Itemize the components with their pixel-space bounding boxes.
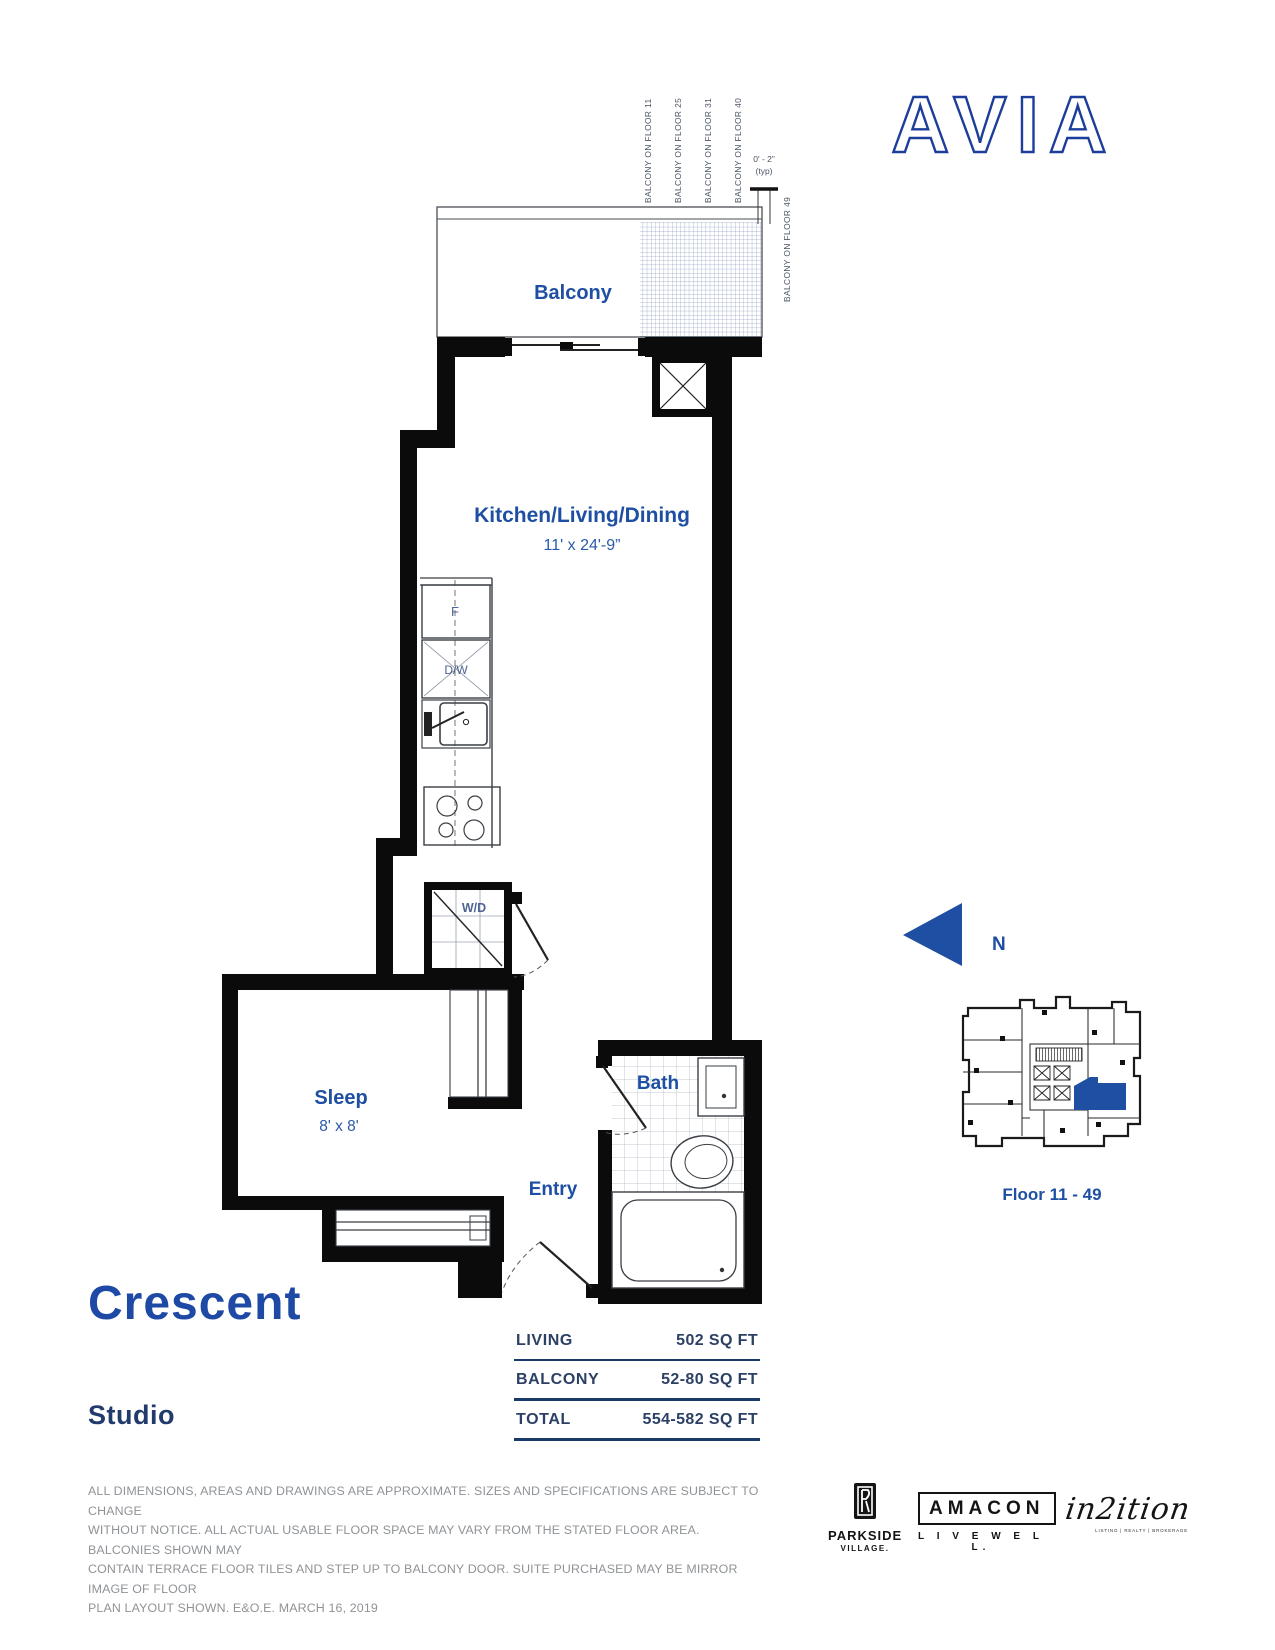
table-row-balcony: BALCONY 52-80 SQ FT — [514, 1361, 760, 1401]
entry-label: Entry — [529, 1179, 578, 1200]
balcony-floor-25-label: BALCONY ON FLOOR 25 — [673, 98, 683, 203]
keyplan-stairs — [1036, 1048, 1082, 1061]
kld-dimension: 11' x 24'-9” — [544, 537, 621, 554]
living-label: LIVING — [516, 1332, 573, 1350]
keyplan-caption: Floor 11 - 49 — [1002, 1185, 1101, 1204]
wd-door — [508, 892, 548, 977]
balcony-floor-49-label: BALCONY ON FLOOR 49 — [782, 197, 792, 302]
balcony-floor-40-label: BALCONY ON FLOOR 40 — [733, 98, 743, 203]
north-label: N — [992, 934, 1006, 955]
sleep-closet — [450, 990, 508, 1097]
dimension-note: 0' - 2” (typ) — [750, 154, 778, 224]
amacon-wordmark: AMACON — [918, 1492, 1056, 1525]
balcony-area-value: 52-80 SQ FT — [661, 1371, 758, 1389]
bath-label: Bath — [637, 1073, 679, 1094]
bath-sink — [698, 1058, 744, 1116]
disclaimer-line: WITHOUT NOTICE. ALL ACTUAL USABLE FLOOR … — [88, 1521, 768, 1560]
washer-dryer: W/D — [432, 890, 504, 968]
in2ition-logo: in2ition LISTING | REALTY | BROKERAGE — [1058, 1492, 1198, 1533]
disclaimer-line: CONTAIN TERRACE FLOOR TILES AND STEP UP … — [88, 1560, 768, 1599]
entry-door — [502, 1242, 600, 1298]
unit-name: Crescent — [88, 1276, 301, 1331]
balcony-sliding-door — [503, 338, 647, 356]
balcony: Balcony — [437, 207, 762, 337]
balcony-floor-31-label: BALCONY ON FLOOR 31 — [703, 98, 713, 203]
unit-type: Studio — [88, 1400, 175, 1431]
living-value: 502 SQ FT — [676, 1332, 758, 1350]
kld-label: Kitchen/Living/Dining — [474, 504, 690, 527]
table-row-total: TOTAL 554-582 SQ FT — [514, 1401, 760, 1441]
area-table: LIVING 502 SQ FT BALCONY 52-80 SQ FT TOT… — [514, 1322, 760, 1441]
parkside-label: PARKSIDE — [828, 1528, 902, 1543]
north-arrow: N — [903, 903, 1006, 966]
total-label: TOTAL — [516, 1411, 571, 1429]
dishwasher-label: D/W — [444, 663, 468, 677]
washer-dryer-label: W/D — [462, 901, 486, 915]
bathtub — [612, 1192, 744, 1288]
stove — [424, 787, 500, 845]
table-row-living: LIVING 502 SQ FT — [514, 1322, 760, 1361]
amacon-tagline: L I V E W E L L. — [918, 1531, 1044, 1553]
balcony-floor-11-label: BALCONY ON FLOOR 11 — [643, 98, 653, 203]
dimension-value: 0' - 2” — [753, 154, 775, 164]
balcony-area-label: BALCONY — [516, 1371, 599, 1389]
disclaimer: ALL DIMENSIONS, AREAS AND DRAWINGS ARE A… — [88, 1482, 768, 1619]
sleep-dimension: 8' x 8' — [319, 1118, 359, 1135]
avia-logo: AVIA — [891, 80, 1116, 169]
balcony-hatch — [640, 222, 762, 337]
kitchen-sink-faucet — [424, 712, 469, 736]
disclaimer-line: PLAN LAYOUT SHOWN. E&O.E. MARCH 16, 2019 — [88, 1599, 768, 1619]
fridge-label: F — [451, 604, 459, 619]
village-label: VILLAGE. — [828, 1544, 902, 1553]
in2ition-tagline: LISTING | REALTY | BROKERAGE — [1058, 1528, 1198, 1533]
shaft — [660, 363, 706, 409]
parkside-logo-icon — [853, 1482, 877, 1525]
parkside-village-logo: PARKSIDE VILLAGE. — [828, 1482, 902, 1553]
keyplan: Floor 11 - 49 — [963, 997, 1140, 1204]
sleep-label: Sleep — [314, 1087, 367, 1109]
dimension-typ: (typ) — [756, 166, 773, 176]
amacon-logo: AMACON L I V E W E L L. — [918, 1492, 1044, 1553]
in2ition-wordmark: in2ition — [1056, 1492, 1201, 1527]
total-value: 554-582 SQ FT — [643, 1411, 758, 1429]
entry-closet — [336, 1210, 490, 1246]
balcony-label: Balcony — [534, 282, 613, 304]
disclaimer-line: ALL DIMENSIONS, AREAS AND DRAWINGS ARE A… — [88, 1482, 768, 1521]
